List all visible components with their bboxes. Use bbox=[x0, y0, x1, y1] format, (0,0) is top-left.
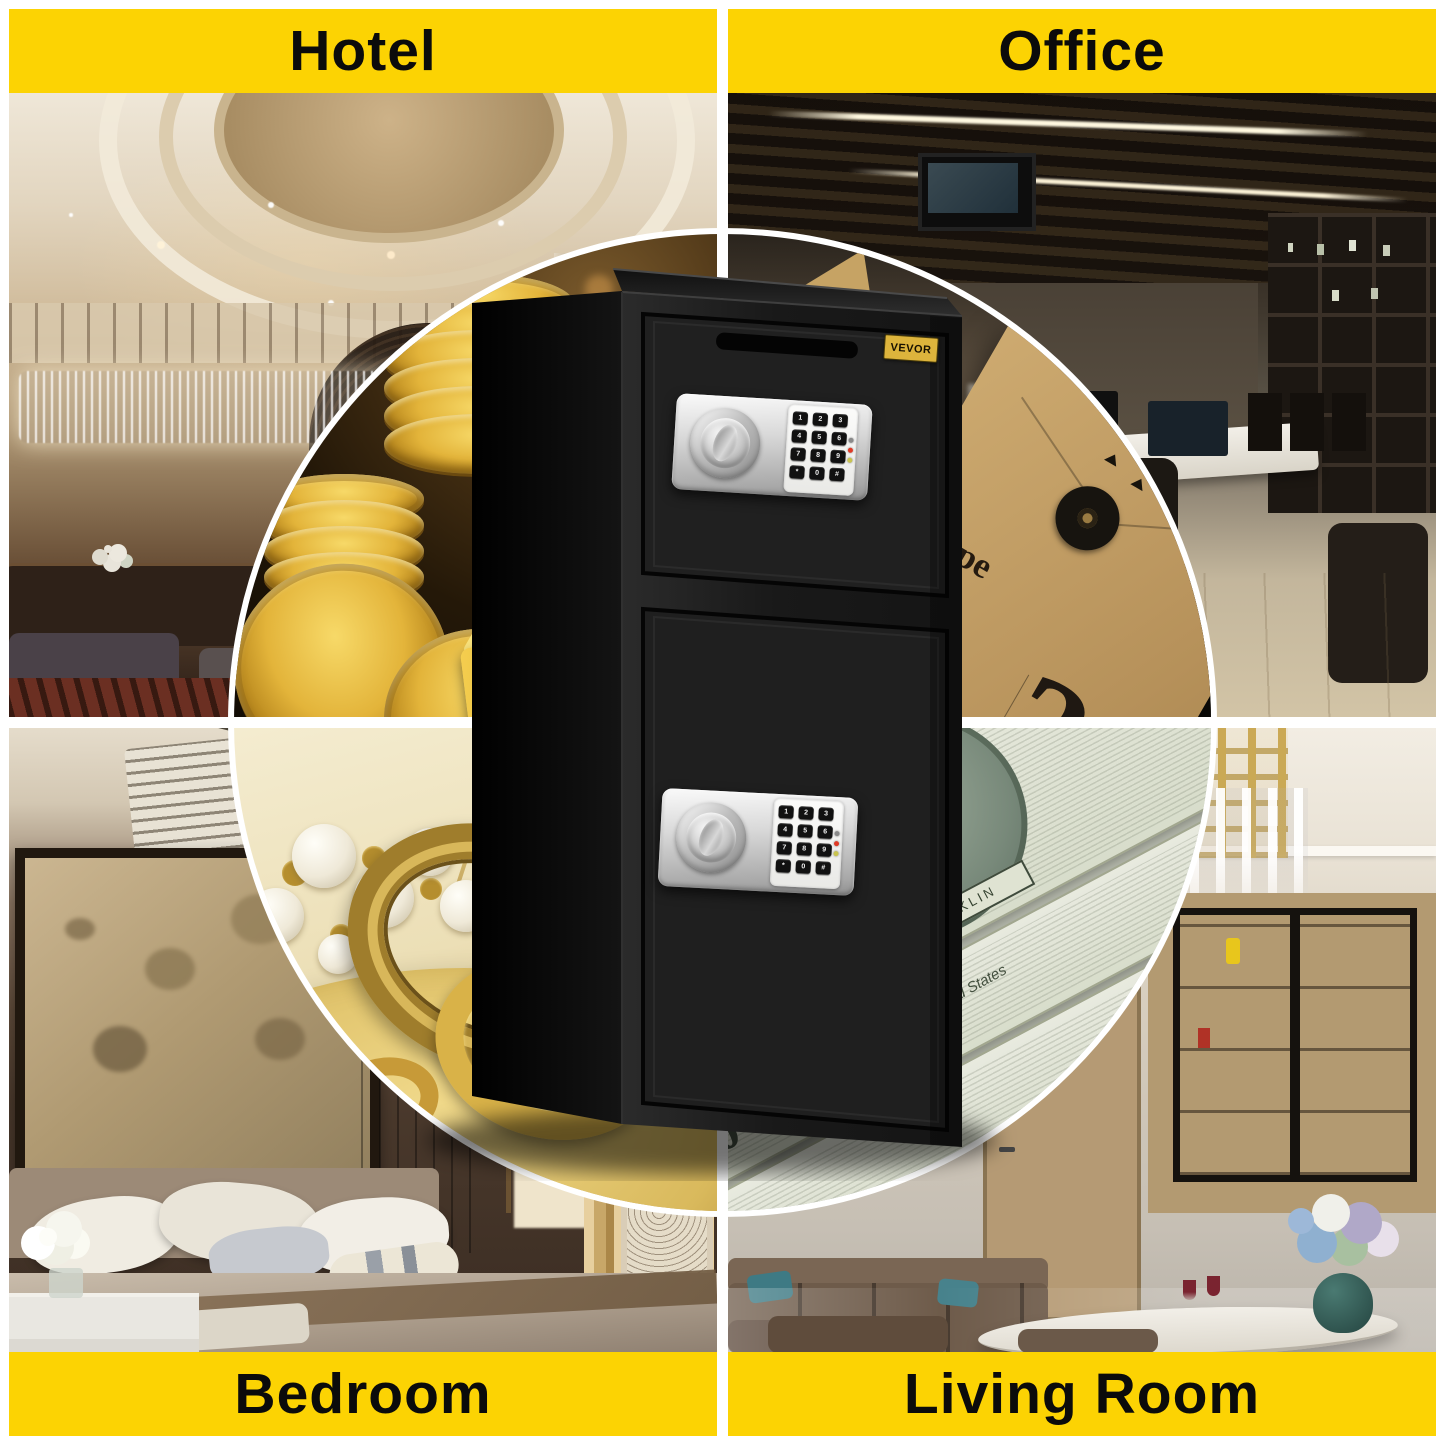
keypad-key-4: 4 bbox=[791, 429, 807, 443]
banner-living-room: Living Room bbox=[728, 1352, 1436, 1436]
banner-bedroom: Bedroom bbox=[9, 1352, 717, 1436]
hotel-ceiling-lights bbox=[69, 213, 73, 217]
envelope-triangle-mark bbox=[1104, 451, 1121, 467]
keypad-key-6: 6 bbox=[817, 825, 833, 839]
living-dining-chair-2 bbox=[1018, 1329, 1158, 1353]
bedroom-glass-vase bbox=[49, 1268, 83, 1298]
keypad-key-9: 9 bbox=[830, 450, 846, 464]
upper-keypad-plate: 123456789*0# bbox=[783, 404, 858, 496]
office-shelf-items bbox=[1288, 243, 1293, 252]
pearl bbox=[292, 824, 356, 888]
keypad-key-0: 0 bbox=[795, 860, 811, 874]
valuables-circle: velope tring ckup published by sign.com … bbox=[228, 228, 1217, 1217]
lock-led bbox=[848, 448, 853, 453]
lock-led bbox=[847, 458, 852, 463]
upper-keypad: 123456789*0# bbox=[789, 411, 848, 481]
living-dining-chair bbox=[768, 1316, 948, 1353]
lower-keypad: 123456789*0# bbox=[775, 805, 833, 875]
keypad-key-8: 8 bbox=[810, 448, 826, 462]
lock-led bbox=[848, 438, 853, 443]
bedroom-hydrangea-flowers bbox=[39, 1228, 57, 1246]
keypad-key-3: 3 bbox=[832, 414, 848, 428]
keypad-key-3: 3 bbox=[818, 807, 834, 821]
knob-grip bbox=[708, 421, 742, 464]
gold-coins-scene bbox=[234, 234, 717, 717]
banner-bedroom-label: Bedroom bbox=[234, 1361, 491, 1427]
upper-lock-knob bbox=[688, 406, 762, 480]
lower-lock-leds bbox=[833, 831, 839, 856]
vevor-badge: VEVOR bbox=[883, 334, 939, 363]
envelope-flap-line bbox=[1110, 523, 1211, 535]
knob-inner bbox=[685, 811, 738, 864]
keypad-key-1: 1 bbox=[778, 805, 794, 819]
envelope-triangle-mark bbox=[1130, 475, 1147, 491]
keypad-key-star: * bbox=[775, 859, 791, 873]
hotel-flower-arrangement bbox=[104, 545, 112, 553]
lower-keypad-plate: 123456789*0# bbox=[770, 798, 845, 890]
office-wall-tv bbox=[918, 153, 1036, 231]
living-yellow-vase bbox=[1226, 938, 1240, 964]
upper-electronic-lock: 123456789*0# bbox=[671, 393, 872, 501]
keypad-key-4: 4 bbox=[777, 823, 793, 837]
keypad-key-hash: # bbox=[829, 468, 845, 482]
keypad-key-0: 0 bbox=[809, 466, 825, 480]
keypad-key-7: 7 bbox=[790, 447, 806, 461]
office-file-organizers bbox=[1248, 393, 1368, 451]
keypad-key-6: 6 bbox=[831, 432, 847, 446]
envelope-string-button bbox=[1044, 475, 1131, 562]
banner-living-room-label: Living Room bbox=[904, 1361, 1260, 1427]
jewelry-scene bbox=[234, 728, 717, 1211]
keypad-key-star: * bbox=[789, 465, 805, 479]
bedroom-nightstand bbox=[9, 1293, 199, 1353]
banner-hotel: Hotel bbox=[9, 9, 717, 93]
upper-lock-leds bbox=[847, 438, 854, 463]
living-teal-vase bbox=[1313, 1273, 1373, 1333]
keypad-key-7: 7 bbox=[776, 841, 792, 855]
banner-office: Office bbox=[728, 9, 1436, 93]
lock-led bbox=[833, 851, 838, 856]
living-flower-bouquet bbox=[1288, 1208, 1314, 1234]
lock-led bbox=[834, 831, 839, 836]
lock-led bbox=[834, 841, 839, 846]
keypad-key-1: 1 bbox=[792, 411, 808, 425]
keypad-key-9: 9 bbox=[816, 843, 832, 857]
lower-electronic-lock: 123456789*0# bbox=[658, 788, 859, 896]
product-collage: velope tring ckup published by sign.com … bbox=[0, 0, 1445, 1445]
coins-warm-bokeh bbox=[294, 264, 304, 274]
knob-grip bbox=[694, 816, 728, 859]
keypad-key-5: 5 bbox=[811, 430, 827, 444]
banner-hotel-label: Hotel bbox=[289, 18, 437, 84]
pearl bbox=[248, 888, 304, 944]
living-glass-cabinet-2 bbox=[1293, 908, 1417, 1182]
keypad-key-2: 2 bbox=[812, 412, 828, 426]
lower-lock-knob bbox=[674, 801, 748, 875]
keypad-key-hash: # bbox=[815, 861, 831, 875]
living-wine-glasses bbox=[1183, 1280, 1196, 1300]
keypad-key-5: 5 bbox=[797, 824, 813, 838]
banner-office-label: Office bbox=[998, 18, 1166, 84]
keypad-key-2: 2 bbox=[798, 806, 814, 820]
envelope-button-eyelet bbox=[1074, 505, 1101, 532]
knob-inner bbox=[699, 417, 752, 470]
kraft-envelope-behind bbox=[740, 234, 936, 392]
bedroom-art-pattern bbox=[65, 918, 95, 940]
keypad-key-8: 8 bbox=[796, 842, 812, 856]
gold-coin bbox=[544, 540, 694, 588]
office-tv-screen bbox=[928, 163, 1018, 213]
